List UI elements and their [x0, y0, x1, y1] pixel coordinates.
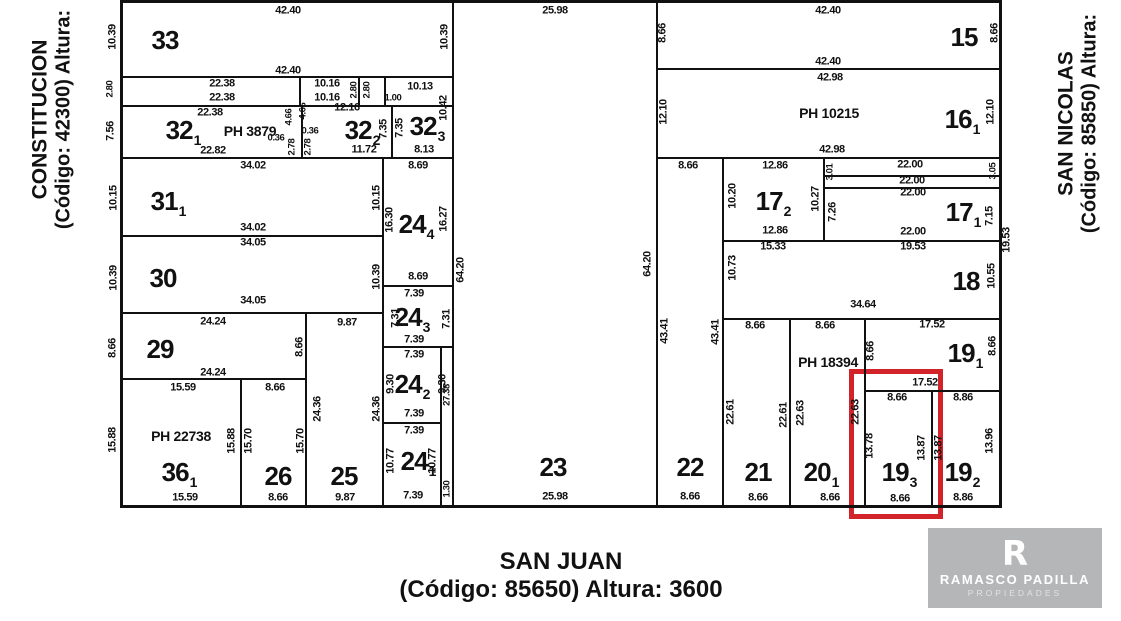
dimension-label: 10.20 [728, 183, 739, 209]
parcel-number-161: 161 [945, 106, 980, 132]
dimension-label: 34.05 [240, 296, 266, 307]
dimension-label: 24.36 [313, 396, 324, 422]
dimension-label: 8.66 [678, 161, 698, 172]
dimension-label: 22.38 [209, 79, 235, 90]
ph-label: PH 10215 [799, 105, 859, 121]
dimension-label: 34.02 [240, 161, 266, 172]
dimension-label: 8.66 [887, 393, 907, 404]
dimension-label: 8.66 [990, 23, 1001, 43]
dimension-label: 8.66 [265, 383, 285, 394]
parcel-number-322: 322 [345, 117, 380, 143]
ph-label: PH 22738 [151, 428, 211, 444]
dimension-label: 4.66 [284, 109, 294, 126]
street-label-san-juan: SAN JUAN (Código: 85650) Altura: 3600 [221, 548, 901, 603]
parcel-number-242: 242 [395, 371, 430, 397]
logo-brand-name: RAMASCO PADILLA [940, 572, 1090, 587]
dimension-label: 17.52 [912, 378, 938, 389]
boundary-line [122, 312, 383, 314]
dimension-label: 22.00 [897, 160, 923, 171]
parcel-number-241: 241 [401, 448, 436, 474]
dimension-label: 2.80 [105, 81, 115, 98]
dimension-label: 2.78 [287, 139, 297, 156]
dimension-label: 24.24 [200, 317, 226, 328]
boundary-line [656, 157, 1001, 159]
dimension-label: 8.66 [295, 337, 306, 357]
dimension-label: 12.10 [659, 99, 670, 125]
dimension-label: 7.26 [828, 202, 839, 222]
dimension-label: 7.39 [404, 409, 424, 420]
dimension-label: 10.16 [314, 79, 340, 90]
dimension-label: 8.86 [953, 493, 973, 504]
dimension-label: 8.66 [745, 321, 765, 332]
dimension-label: 22.61 [726, 399, 737, 425]
dimension-label: 22.00 [899, 176, 925, 187]
dimension-label: 42.98 [817, 73, 843, 84]
parcel-number-25: 25 [331, 463, 358, 489]
parcel-number-311: 311 [151, 188, 186, 214]
dimension-label: 7.35 [395, 118, 406, 138]
dimension-label: 12.16 [334, 103, 360, 114]
dimension-label: 13.96 [985, 428, 996, 454]
parcel-number-29: 29 [147, 336, 174, 362]
dimension-label: 15.59 [170, 383, 196, 394]
dimension-label: 0.36 [302, 126, 319, 136]
dimension-label: 17.52 [919, 320, 945, 331]
dimension-label: 34.02 [240, 223, 266, 234]
parcel-number-243: 243 [395, 304, 430, 330]
dimension-label: 8.69 [408, 272, 428, 283]
dimension-label: 42.40 [275, 6, 301, 17]
boundary-line [122, 105, 453, 107]
parcel-number-26: 26 [265, 463, 292, 489]
parcel-number-323: 323 [410, 113, 445, 139]
dimension-label: 8.66 [658, 23, 669, 43]
dimension-label: 9.87 [337, 318, 357, 329]
street-name: SAN JUAN [221, 548, 901, 576]
dimension-label: 25.98 [542, 492, 568, 503]
boundary-line [122, 157, 453, 159]
dimension-label: 42.98 [819, 145, 845, 156]
dimension-label: 10.39 [109, 265, 120, 291]
dimension-label: 22.82 [200, 146, 226, 157]
dimension-label: 7.35 [379, 119, 390, 139]
dimension-label: 34.64 [850, 300, 876, 311]
parcel-number-22: 22 [677, 454, 704, 480]
dimension-label: 24.24 [200, 368, 226, 379]
dimension-label: 15.70 [296, 428, 307, 454]
dimension-label: 1.30 [442, 481, 452, 498]
dimension-label: 7.39 [404, 335, 424, 346]
dimension-label: 22.38 [209, 93, 235, 104]
dimension-label: 8.66 [890, 494, 910, 505]
dimension-label: 10.15 [109, 185, 120, 211]
dimension-label: 27.38 [442, 384, 452, 406]
parcel-number-30: 30 [150, 265, 177, 291]
dimension-label: 10.39 [108, 24, 119, 50]
dimension-label: 7.39 [404, 350, 424, 361]
dimension-label: 15.70 [244, 428, 255, 454]
cadastral-plan-canvas: CONSTITUCION (Código: 42300) Altura: SAN… [0, 0, 1121, 621]
dimension-label: 19.53 [1002, 227, 1013, 253]
dimension-label: 8.13 [414, 145, 434, 156]
parcel-number-15: 15 [951, 24, 978, 50]
dimension-label: 2.80 [362, 82, 372, 99]
dimension-label: 7.39 [404, 289, 424, 300]
dimension-label: 15.33 [760, 242, 786, 253]
dimension-label: 13.87 [934, 435, 945, 461]
dimension-label: 12.86 [762, 161, 788, 172]
dimension-label: 10.77 [386, 448, 397, 474]
dimension-label: 64.20 [643, 251, 654, 277]
parcel-number-23: 23 [540, 454, 567, 480]
logo-tagline: PROPIEDADES [968, 588, 1062, 598]
dimension-label: 1.00 [385, 93, 402, 103]
ph-label: PH 3879 [224, 123, 276, 139]
dimension-label: 8.66 [680, 492, 700, 503]
dimension-label: 9.87 [335, 493, 355, 504]
ph-label: PH 18394 [798, 354, 858, 370]
dimension-label: 22.38 [197, 108, 223, 119]
dimension-label: 22.61 [779, 402, 790, 428]
dimension-label: 15.88 [108, 427, 119, 453]
dimension-label: 7.39 [403, 491, 423, 502]
parcel-number-244: 244 [399, 211, 434, 237]
dimension-label: 7.39 [404, 426, 424, 437]
parcel-number-192: 192 [945, 459, 980, 485]
dimension-label: 42.40 [275, 66, 301, 77]
parcel-number-321: 321 [166, 117, 201, 143]
parcel-number-21: 21 [745, 459, 772, 485]
dimension-label: 10.39 [440, 24, 451, 50]
boundary-line [656, 0, 658, 507]
street-detail: (Código: 85650) Altura: 3600 [221, 576, 901, 604]
dimension-label: 8.66 [988, 336, 999, 356]
dimension-label: 7.15 [985, 206, 996, 226]
dimension-label: 8.66 [866, 341, 877, 361]
parcel-number-172: 172 [756, 188, 791, 214]
parcel-number-191: 191 [948, 340, 983, 366]
dimension-label: 10.13 [407, 82, 433, 93]
parcel-number-193: 193 [882, 459, 917, 485]
dimension-label: 8.66 [820, 493, 840, 504]
dimension-label: 12.86 [762, 226, 788, 237]
dimension-label: 42.40 [815, 6, 841, 17]
dimension-label: 2.80 [349, 82, 359, 99]
parcel-number-18: 18 [953, 268, 980, 294]
dimension-label: 13.87 [917, 435, 928, 461]
dimension-label: 8.66 [815, 321, 835, 332]
dimension-label: 25.98 [542, 6, 568, 17]
logo-r-mark-icon: R [1002, 538, 1028, 570]
dimension-label: 22.00 [900, 188, 926, 199]
dimension-label: 15.59 [172, 493, 198, 504]
dimension-label: 10.15 [372, 185, 383, 211]
dimension-label: 22.63 [796, 400, 807, 426]
dimension-label: 12.10 [986, 99, 997, 125]
dimension-label: 10.39 [372, 264, 383, 290]
dimension-label: 22.00 [900, 227, 926, 238]
dimension-label: 42.40 [815, 57, 841, 68]
dimension-label: 10.55 [987, 263, 998, 289]
dimension-label: 2.78 [303, 139, 313, 156]
dimension-label: 22.63 [851, 399, 862, 425]
dimension-label: 8.86 [953, 393, 973, 404]
parcel-number-361: 361 [162, 459, 197, 485]
logo-ramasco-padilla: R RAMASCO PADILLA PROPIEDADES [928, 528, 1102, 608]
dimension-label: 4.66 [298, 103, 308, 120]
boundary-line [999, 0, 1002, 508]
parcel-number-33: 33 [152, 27, 179, 53]
boundary-line [864, 390, 1001, 392]
boundary-line [120, 0, 1002, 3]
parcel-number-201: 201 [804, 459, 839, 485]
dimension-label: 19.53 [900, 242, 926, 253]
parcel-number-171: 171 [946, 199, 981, 225]
dimension-label: 8.66 [268, 493, 288, 504]
boundary-line [120, 505, 1002, 508]
dimension-label: 16.27 [439, 206, 450, 232]
dimension-label: 3.01 [825, 164, 835, 181]
dimension-label: 7.31 [442, 309, 453, 329]
dimension-label: 43.41 [660, 318, 671, 344]
dimension-label: 8.66 [748, 493, 768, 504]
dimension-label: 13.78 [865, 433, 876, 459]
dimension-label: 43.41 [711, 319, 722, 345]
dimension-label: 16.30 [385, 207, 396, 233]
boundary-line [656, 68, 1001, 70]
dimension-label: 8.69 [408, 161, 428, 172]
dimension-label: 3.05 [988, 163, 998, 180]
dimension-label: 8.66 [108, 338, 119, 358]
dimension-label: 15.88 [227, 428, 238, 454]
dimension-label: 64.20 [456, 257, 467, 283]
dimension-label: 34.05 [240, 238, 266, 249]
dimension-label: 7.56 [106, 121, 117, 141]
boundary-line [722, 157, 724, 507]
dimension-label: 10.73 [728, 255, 739, 281]
dimension-label: 24.36 [372, 396, 383, 422]
dimension-label: 10.27 [811, 186, 822, 212]
